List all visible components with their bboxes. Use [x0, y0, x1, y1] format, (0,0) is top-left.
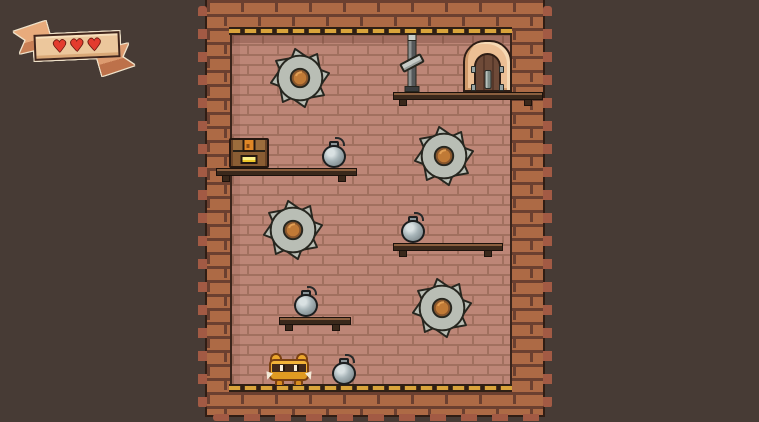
saw-blade-icon	[412, 124, 476, 188]
bomb[interactable]	[322, 138, 346, 168]
exit-door[interactable]	[463, 40, 512, 92]
banner-band: ♥♥♥	[33, 31, 120, 61]
treasure-chest[interactable]	[229, 138, 269, 168]
lever-base	[405, 86, 420, 92]
player-eye-mask	[272, 364, 306, 372]
door-bolt	[471, 66, 476, 73]
saw-blade-hazard	[410, 276, 474, 340]
bomb[interactable]	[332, 355, 356, 385]
saw-blade-icon	[261, 198, 325, 262]
bomb-sphere	[322, 145, 346, 168]
bomb-sphere	[401, 220, 425, 243]
player-character[interactable]	[266, 353, 312, 385]
player-foot	[275, 379, 284, 385]
platform	[279, 317, 351, 325]
bomb-sphere	[294, 294, 318, 317]
door-frame	[463, 40, 512, 92]
game-screen: { "scene": { "background_color": "#473b3…	[0, 0, 759, 422]
hearts-display: ♥♥♥	[49, 37, 105, 55]
health-banner: ♥♥♥	[14, 18, 138, 78]
saw-blade-hazard	[268, 46, 332, 110]
saw-blade-hazard	[261, 198, 325, 262]
bomb[interactable]	[401, 213, 425, 243]
platform	[216, 168, 357, 176]
bomb[interactable]	[294, 287, 318, 317]
door-bolt	[471, 84, 476, 91]
saw-blade-hazard	[412, 124, 476, 188]
platform	[393, 92, 543, 100]
door-bolt	[499, 66, 504, 73]
player-eye	[280, 365, 285, 371]
chest-gold-plate	[241, 155, 258, 164]
platform	[393, 243, 503, 251]
player-foot	[294, 379, 303, 385]
saw-blade-icon	[268, 46, 332, 110]
saw-blade-icon	[410, 276, 474, 340]
lever-switch[interactable]	[401, 34, 423, 92]
player-eye	[294, 365, 299, 371]
bomb-sphere	[332, 362, 356, 385]
chest-latch	[243, 138, 256, 152]
chest-body	[229, 138, 269, 168]
door-bolt	[499, 84, 504, 91]
door-handle	[484, 70, 491, 89]
